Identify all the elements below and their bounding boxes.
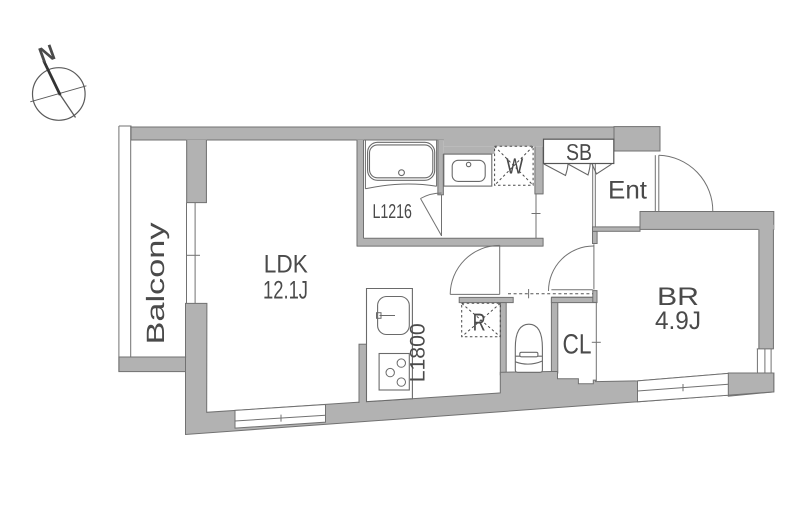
svg-text:W: W — [506, 154, 523, 179]
svg-text:R: R — [473, 309, 486, 336]
svg-text:4.9J: 4.9J — [655, 307, 701, 335]
svg-text:L1216: L1216 — [372, 201, 412, 223]
svg-text:L1800: L1800 — [407, 323, 430, 382]
svg-text:LDK: LDK — [264, 251, 308, 279]
svg-text:SB: SB — [566, 139, 592, 165]
svg-text:12.1J: 12.1J — [263, 276, 308, 304]
svg-text:CL: CL — [563, 329, 592, 360]
svg-text:Ent: Ent — [608, 176, 647, 204]
svg-text:Balcony: Balcony — [142, 222, 170, 345]
